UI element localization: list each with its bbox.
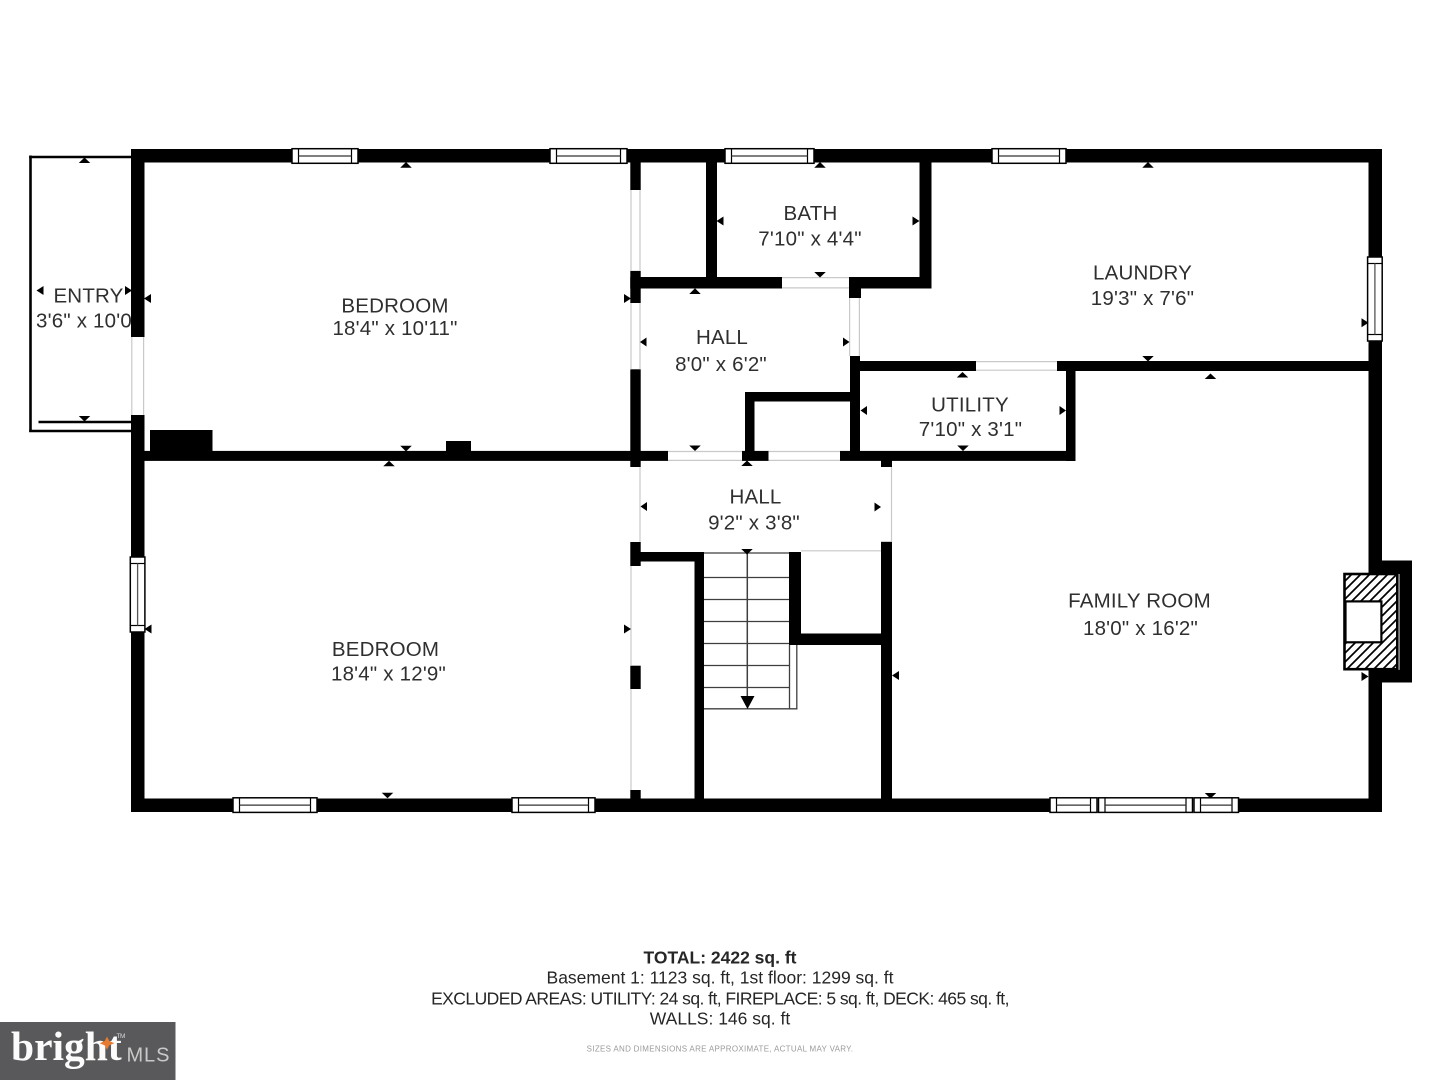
svg-text:18'0" x 16'2": 18'0" x 16'2" xyxy=(1083,617,1198,640)
svg-text:MLS: MLS xyxy=(127,1045,171,1067)
svg-text:Basement 1: 1123 sq. ft, 1st f: Basement 1: 1123 sq. ft, 1st floor: 1299… xyxy=(547,968,894,988)
svg-text:18'4" x 10'11": 18'4" x 10'11" xyxy=(332,317,457,340)
svg-text:BEDROOM: BEDROOM xyxy=(341,294,448,317)
svg-text:BEDROOM: BEDROOM xyxy=(332,638,439,661)
svg-text:18'4" x 12'9": 18'4" x 12'9" xyxy=(331,662,446,685)
svg-text:HALL: HALL xyxy=(696,326,748,349)
svg-text:FAMILY ROOM: FAMILY ROOM xyxy=(1068,589,1211,612)
svg-text:LAUNDRY: LAUNDRY xyxy=(1093,261,1192,284)
svg-text:SIZES AND DIMENSIONS ARE APPRO: SIZES AND DIMENSIONS ARE APPROXIMATE, AC… xyxy=(587,1045,854,1054)
svg-text:7'10" x 4'4": 7'10" x 4'4" xyxy=(758,227,861,250)
svg-text:TOTAL: 2422 sq. ft: TOTAL: 2422 sq. ft xyxy=(644,947,797,967)
svg-text:EXCLUDED AREAS: UTILITY: 24 sq: EXCLUDED AREAS: UTILITY: 24 sq. ft, FIRE… xyxy=(431,988,1009,1008)
svg-text:BATH: BATH xyxy=(784,202,838,225)
svg-text:7'10" x 3'1": 7'10" x 3'1" xyxy=(919,418,1022,441)
svg-text:UTILITY: UTILITY xyxy=(931,393,1009,416)
svg-text:HALL: HALL xyxy=(729,485,781,508)
svg-text:8'0" x 6'2": 8'0" x 6'2" xyxy=(675,353,767,376)
svg-text:ENTRY: ENTRY xyxy=(53,284,123,307)
svg-text:TM: TM xyxy=(117,1033,125,1040)
svg-text:19'3" x 7'6": 19'3" x 7'6" xyxy=(1091,287,1194,310)
svg-text:9'2" x 3'8": 9'2" x 3'8" xyxy=(708,511,800,534)
svg-text:3'6" x 10'0: 3'6" x 10'0 xyxy=(36,309,132,332)
svg-text:WALLS: 146 sq. ft: WALLS: 146 sq. ft xyxy=(650,1009,791,1029)
